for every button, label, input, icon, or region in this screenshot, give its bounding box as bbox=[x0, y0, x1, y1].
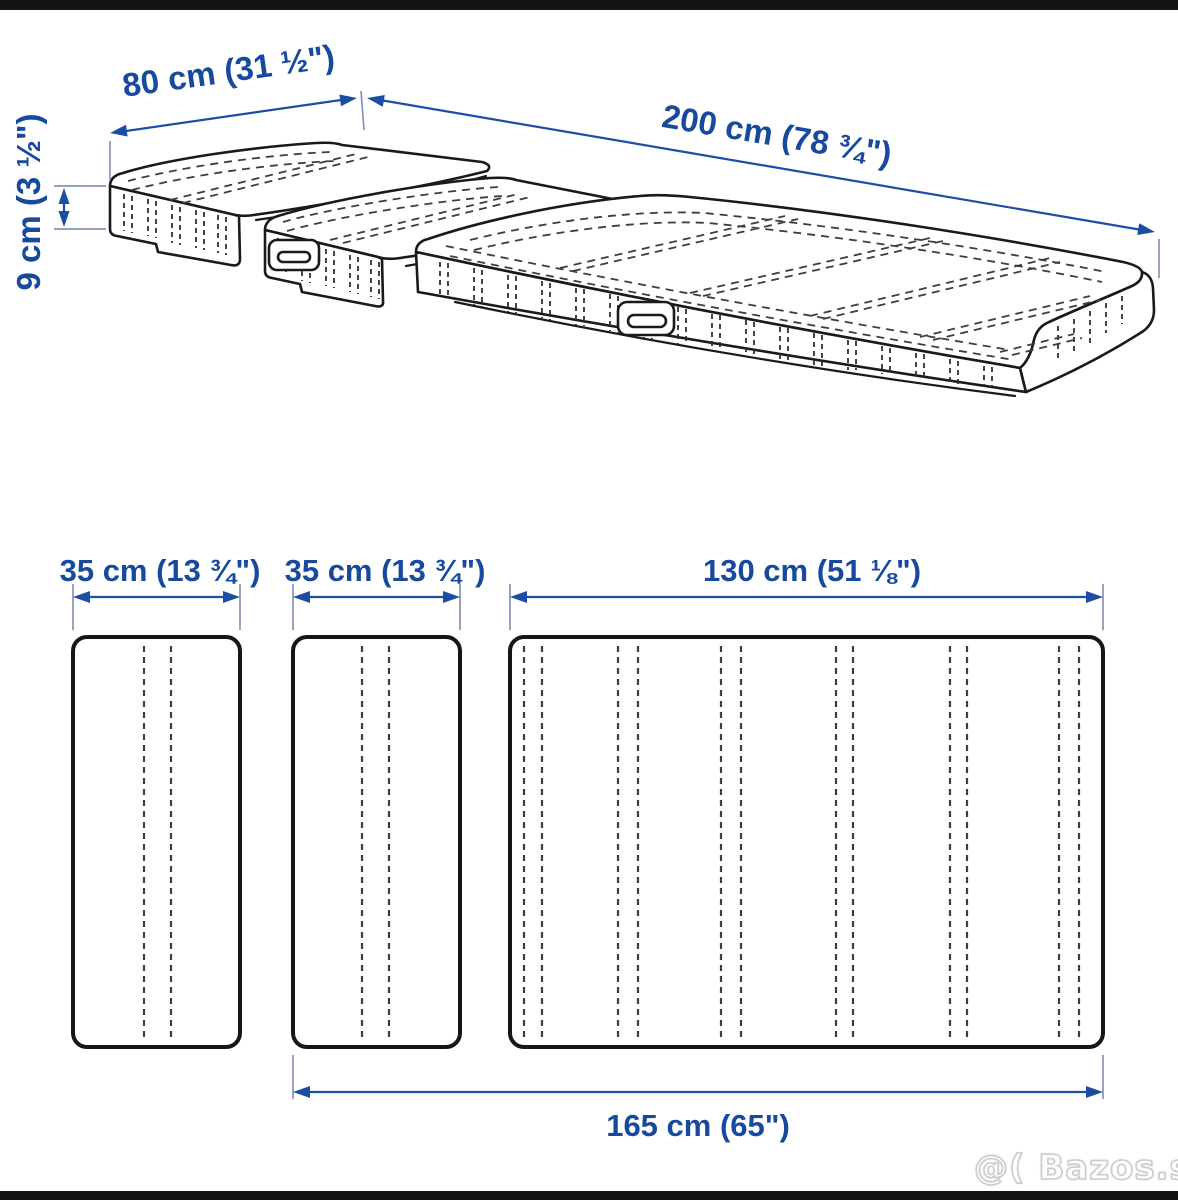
height-arrowhead-up bbox=[59, 188, 70, 204]
section3-arrowhead-right bbox=[1086, 591, 1103, 603]
section2-handle-slot bbox=[278, 252, 310, 262]
section2-arrowhead-left bbox=[293, 591, 310, 603]
section2-extension-lines bbox=[293, 584, 460, 630]
width-dimension-label: 80 cm (31 ½") bbox=[120, 37, 337, 103]
section3-extension-lines bbox=[510, 584, 1103, 630]
watermark-bazos-sk: @( Bazos.sk bbox=[974, 1148, 1178, 1190]
width-arrowhead-left bbox=[110, 125, 128, 137]
width-arrowhead-right bbox=[339, 95, 357, 107]
dimension-section2-35cm: 35 cm (13 ¾") bbox=[285, 553, 486, 630]
length-dimension-label: 200 cm (78 ¾") bbox=[659, 97, 894, 172]
extended-arrowhead-right bbox=[1086, 1086, 1103, 1098]
dimension-section3-130cm: 130 cm (51 ⅛") bbox=[510, 553, 1103, 630]
mattress-section-3 bbox=[416, 195, 1154, 396]
section1-extension-lines bbox=[73, 584, 240, 630]
mattress-dimension-diagram: 80 cm (31 ½") 200 cm (78 ¾") 9 cm (3 ½") bbox=[0, 0, 1178, 1200]
bottom-letterbox-bar bbox=[0, 1191, 1178, 1200]
diagram-canvas: 80 cm (31 ½") 200 cm (78 ¾") 9 cm (3 ½") bbox=[0, 0, 1178, 1200]
section3-width-label: 130 cm (51 ⅛") bbox=[703, 553, 921, 588]
width-arrow-line bbox=[126, 100, 341, 131]
section1-arrowhead-left bbox=[73, 591, 90, 603]
plan-panel-2 bbox=[293, 637, 460, 1047]
section1-arrowhead-right bbox=[223, 591, 240, 603]
section2-width-label: 35 cm (13 ¾") bbox=[285, 553, 486, 588]
dimension-height-9cm: 9 cm (3 ½") bbox=[10, 113, 106, 290]
plan-view: 35 cm (13 ¾") 35 cm (13 ¾") 130 cm (51 ⅛… bbox=[60, 553, 1103, 1143]
extended-length-label: 165 cm (65") bbox=[606, 1108, 790, 1143]
top-letterbox-bar bbox=[0, 0, 1178, 10]
section2-arrowhead-right bbox=[443, 591, 460, 603]
perspective-view: 80 cm (31 ½") 200 cm (78 ¾") 9 cm (3 ½") bbox=[10, 37, 1159, 396]
extended-arrowhead-left bbox=[293, 1086, 310, 1098]
dimension-extended-165cm: 165 cm (65") bbox=[293, 1055, 1103, 1143]
length-arrowhead-right bbox=[1137, 223, 1155, 235]
plan-panel-1 bbox=[73, 637, 240, 1047]
dimension-section1-35cm: 35 cm (13 ¾") bbox=[60, 553, 261, 630]
section1-width-label: 35 cm (13 ¾") bbox=[60, 553, 261, 588]
section3-handle-slot bbox=[628, 315, 666, 327]
height-dimension-label: 9 cm (3 ½") bbox=[10, 113, 47, 290]
section3-arrowhead-left bbox=[510, 591, 527, 603]
length-arrowhead-left bbox=[367, 95, 385, 107]
plan-panel-3 bbox=[510, 637, 1103, 1047]
height-arrowhead-down bbox=[59, 211, 70, 227]
width-length-shared-tick bbox=[361, 91, 364, 130]
